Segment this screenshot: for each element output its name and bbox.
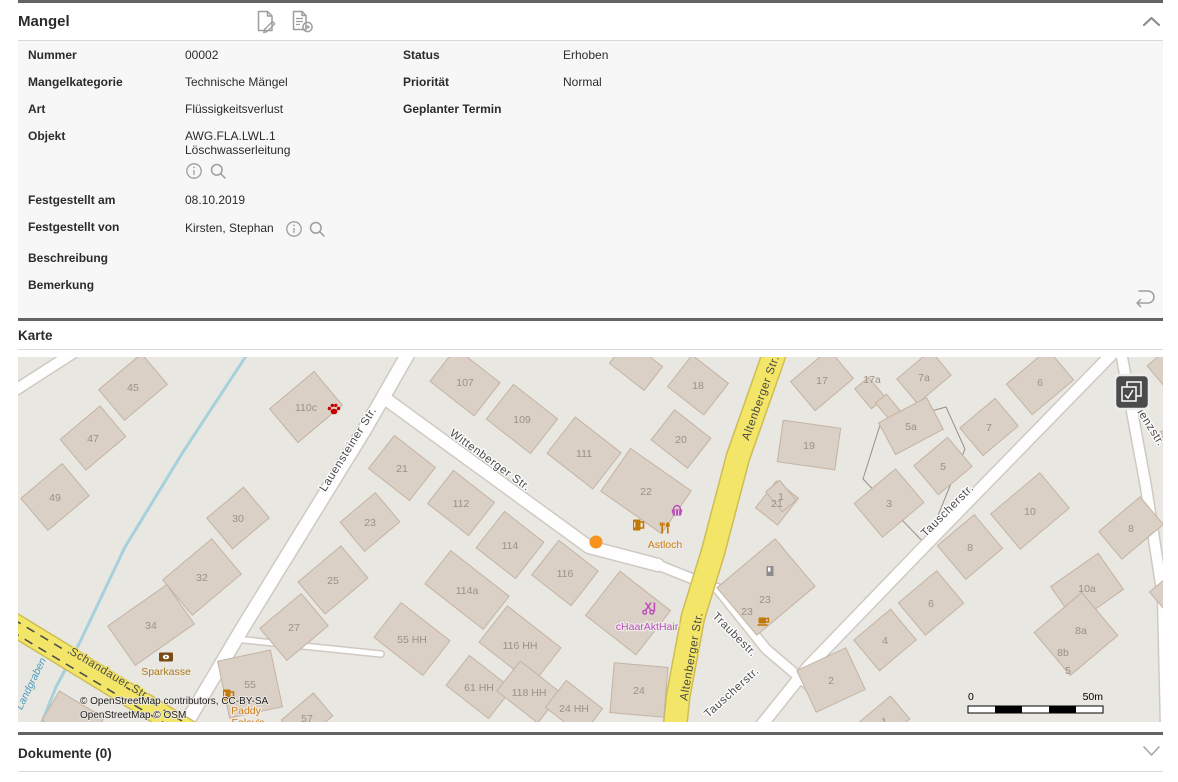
festgestellt-von-value: Kirsten, Stephan [185, 221, 274, 235]
svg-text:6: 6 [1037, 377, 1043, 389]
field-value: Flüssigkeitsverlust [185, 102, 283, 116]
svg-text:18: 18 [692, 380, 704, 392]
field-row-prioritaet: Priorität Normal [403, 75, 1153, 89]
mangel-section: Mangel [18, 3, 1163, 318]
svg-text:23: 23 [364, 517, 376, 529]
poi-label: Foley's [232, 717, 265, 722]
svg-text:107: 107 [456, 377, 474, 389]
objekt-value-line2: Löschwasserleitung [185, 143, 290, 157]
divider [18, 771, 1163, 772]
field-label: Art [28, 102, 185, 116]
field-value: 08.10.2019 [185, 193, 245, 207]
svg-text:22: 22 [640, 486, 652, 498]
field-label: Beschreibung [28, 251, 185, 265]
page: Mangel [18, 0, 1163, 772]
svg-text:61 HH: 61 HH [464, 682, 494, 694]
svg-text:118 HH: 118 HH [512, 687, 547, 699]
svg-text:110c: 110c [295, 402, 317, 414]
svg-text:27: 27 [288, 622, 300, 634]
svg-text:0: 0 [968, 691, 974, 703]
field-label: Objekt [28, 129, 185, 180]
field-label: Nummer [28, 48, 185, 62]
field-value: 00002 [185, 48, 218, 62]
svg-text:1: 1 [881, 716, 887, 722]
svg-text:8b: 8b [1057, 647, 1069, 659]
svg-text:116: 116 [557, 568, 574, 580]
svg-text:1: 1 [778, 491, 784, 503]
svg-text:55 HH: 55 HH [397, 634, 427, 646]
svg-text:34: 34 [145, 620, 157, 632]
map-attribution: © OpenStreetMap contributors, CC-BY-SA [80, 696, 269, 707]
map-marker[interactable] [590, 536, 603, 549]
svg-text:32: 32 [196, 572, 208, 584]
svg-text:3: 3 [886, 498, 892, 510]
map-attribution: OpenStreetMap © OSM [80, 710, 186, 721]
svg-text:2: 2 [828, 675, 834, 687]
mangel-toolbar [252, 8, 315, 35]
svg-text:6: 6 [928, 598, 934, 610]
field-row-festgestellt-von: Festgestellt von Kirsten, Stephan [28, 220, 403, 238]
svg-text:17: 17 [816, 375, 828, 387]
svg-text:20: 20 [675, 434, 687, 446]
field-row-status: Status Erhoben [403, 48, 1153, 62]
field-label: Bemerkung [28, 278, 185, 292]
svg-text:19: 19 [803, 440, 815, 452]
field-row-mangelkategorie: Mangelkategorie Technische Mängel [28, 75, 403, 89]
field-label: Status [403, 48, 563, 62]
svg-text:10: 10 [1024, 506, 1036, 518]
search-icon[interactable] [308, 220, 326, 238]
svg-text:45: 45 [127, 382, 139, 394]
field-value: Erhoben [563, 48, 608, 62]
svg-text:17a: 17a [863, 374, 881, 386]
expand-dokumente-chevron-down-icon[interactable] [1142, 744, 1161, 762]
svg-text:23: 23 [759, 594, 771, 606]
svg-text:5: 5 [940, 461, 946, 473]
svg-text:30: 30 [232, 513, 244, 525]
svg-text:25: 25 [327, 575, 339, 587]
svg-text:21: 21 [396, 463, 408, 475]
svg-text:4: 4 [882, 635, 888, 647]
svg-text:112: 112 [453, 498, 470, 510]
svg-text:114a: 114a [456, 585, 479, 597]
field-row-beschreibung: Beschreibung [28, 251, 403, 265]
svg-text:50m: 50m [1083, 691, 1104, 703]
field-value: Kirsten, Stephan [185, 220, 326, 238]
field-row-festgestellt-am: Festgestellt am 08.10.2019 [28, 193, 403, 207]
mangel-form: Nummer 00002 Mangelkategorie Technische … [18, 41, 1163, 318]
field-row-geplanter-termin: Geplanter Termin [403, 102, 1153, 116]
svg-text:24: 24 [633, 685, 645, 697]
svg-text:7a: 7a [918, 372, 930, 384]
field-value: AWG.FLA.LWL.1 Löschwasserleitung [185, 129, 290, 180]
map[interactable]: 454749303234110c232527555721112114114a10… [18, 357, 1163, 722]
field-row-art: Art Flüssigkeitsverlust [28, 102, 403, 116]
field-row-bemerkung: Bemerkung [28, 278, 403, 292]
svg-text:7: 7 [986, 422, 992, 434]
divider [18, 318, 1163, 321]
poi-label: Sparkasse [141, 666, 191, 678]
undo-icon[interactable] [1129, 287, 1155, 314]
poi-vending-icon [767, 566, 774, 576]
field-label: Festgestellt am [28, 193, 185, 207]
mangel-title: Mangel [18, 13, 70, 30]
svg-text:10a: 10a [1078, 583, 1096, 595]
map-layers-button[interactable] [1115, 375, 1149, 409]
karte-section: Karte 454749303234110c232527555721112114… [18, 328, 1163, 722]
field-row-objekt: Objekt AWG.FLA.LWL.1 Löschwasserleitung [28, 129, 403, 180]
karte-title: Karte [18, 328, 1163, 343]
add-report-icon[interactable] [288, 8, 315, 35]
svg-text:24 HH: 24 HH [559, 703, 589, 715]
objekt-value-line1: AWG.FLA.LWL.1 [185, 129, 290, 143]
svg-text:5a: 5a [905, 421, 917, 433]
collapse-mangel-chevron-up-icon[interactable] [1142, 14, 1161, 32]
field-label: Festgestellt von [28, 220, 185, 238]
svg-text:8: 8 [967, 542, 973, 554]
svg-text:55: 55 [244, 679, 256, 691]
svg-text:116 HH: 116 HH [503, 640, 538, 652]
edit-icon[interactable] [252, 8, 279, 35]
field-label: Geplanter Termin [403, 102, 563, 116]
mangel-header: Mangel [18, 3, 1163, 40]
field-label: Priorität [403, 75, 563, 89]
search-icon[interactable] [209, 162, 227, 180]
dokumente-header: Dokumente (0) [18, 735, 1163, 771]
poi-label: cHaarAktHair [616, 621, 679, 633]
field-value: Technische Mängel [185, 75, 288, 89]
dokumente-section: Dokumente (0) [18, 735, 1163, 772]
svg-text:47: 47 [87, 433, 99, 445]
poi-bank-icon [159, 653, 173, 662]
svg-text:49: 49 [49, 492, 61, 504]
svg-text:111: 111 [576, 448, 592, 460]
info-icon[interactable] [185, 162, 203, 180]
divider [18, 349, 1163, 350]
field-row-nummer: Nummer 00002 [28, 48, 403, 62]
svg-text:57: 57 [301, 713, 313, 722]
poi-label: Astloch [648, 539, 683, 551]
svg-text:8: 8 [1128, 523, 1134, 535]
svg-text:23: 23 [741, 606, 753, 618]
svg-text:109: 109 [513, 414, 531, 426]
info-icon[interactable] [285, 220, 303, 238]
svg-text:5: 5 [1065, 665, 1071, 677]
field-value: Normal [563, 75, 602, 89]
field-label: Mangelkategorie [28, 75, 185, 89]
dokumente-title: Dokumente (0) [18, 746, 112, 761]
map-canvas[interactable]: 454749303234110c232527555721112114114a10… [18, 357, 1163, 722]
svg-text:8a: 8a [1075, 625, 1087, 637]
svg-text:114: 114 [502, 540, 519, 552]
